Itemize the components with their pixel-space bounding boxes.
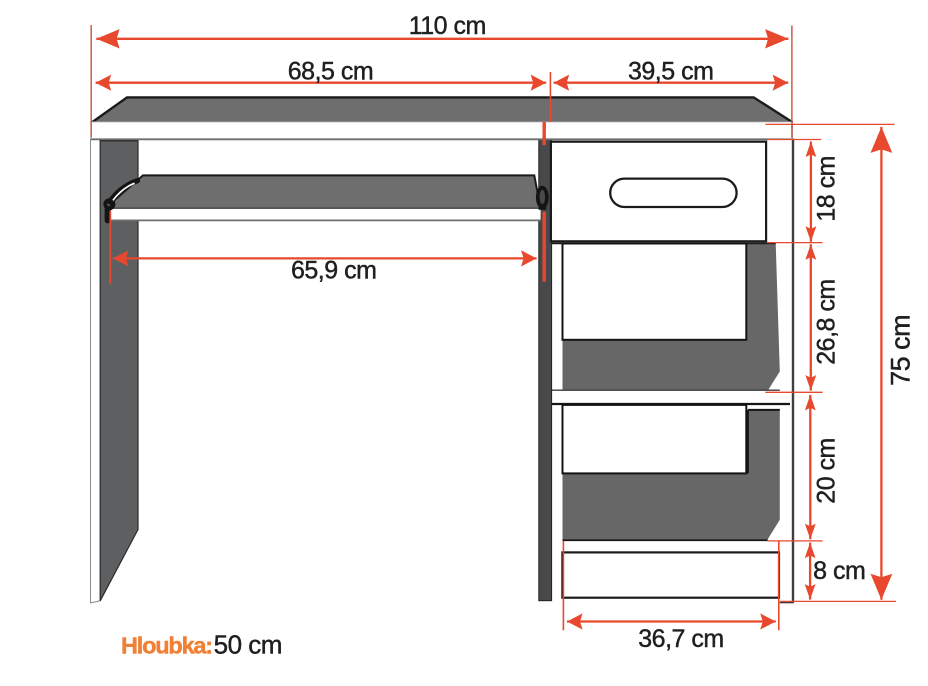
svg-text:75 cm: 75 cm xyxy=(886,315,916,386)
svg-text:26,8 cm: 26,8 cm xyxy=(813,279,841,364)
svg-text:8 cm: 8 cm xyxy=(813,557,865,585)
svg-text:39,5 cm: 39,5 cm xyxy=(628,57,713,85)
svg-text:18 cm: 18 cm xyxy=(813,156,841,222)
svg-text:65,9 cm: 65,9 cm xyxy=(291,257,376,285)
svg-text:110 cm: 110 cm xyxy=(409,12,486,40)
svg-text:Hloubka: 50 cm: Hloubka: 50 cm xyxy=(121,630,282,660)
svg-text:36,7 cm: 36,7 cm xyxy=(638,625,723,653)
svg-text:68,5 cm: 68,5 cm xyxy=(288,57,373,85)
svg-text:20 cm: 20 cm xyxy=(812,438,840,504)
